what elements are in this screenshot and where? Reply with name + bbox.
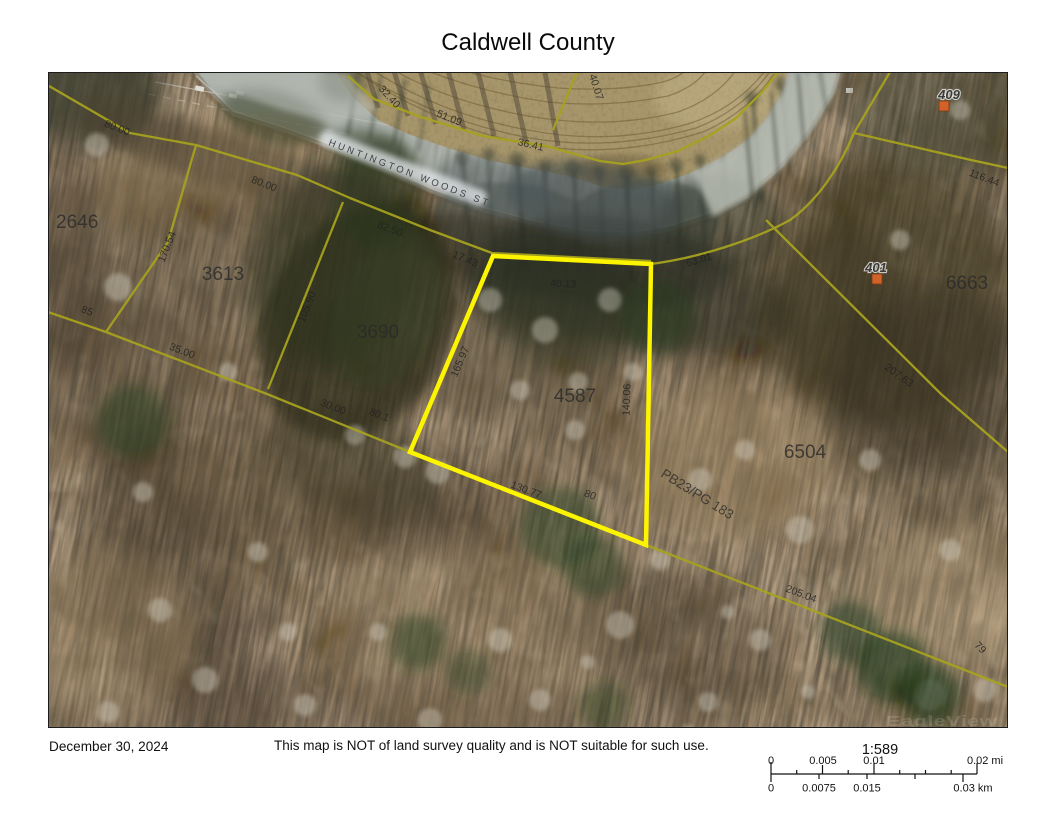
svg-text:2646: 2646 — [56, 212, 98, 233]
svg-text:6504: 6504 — [784, 442, 827, 463]
svg-text:140.06: 140.06 — [620, 383, 633, 416]
svg-text:0.03 km: 0.03 km — [953, 783, 992, 795]
svg-text:409: 409 — [937, 87, 960, 102]
svg-text:3690: 3690 — [357, 322, 399, 343]
svg-text:40.13: 40.13 — [550, 277, 577, 290]
svg-text:6663: 6663 — [946, 273, 988, 294]
svg-text:4587: 4587 — [554, 386, 596, 407]
svg-text:0: 0 — [768, 783, 774, 795]
svg-text:0.0075: 0.0075 — [802, 783, 836, 795]
svg-text:0.015: 0.015 — [853, 783, 881, 795]
svg-text:0.02 mi: 0.02 mi — [967, 755, 1003, 767]
svg-text:401: 401 — [864, 260, 887, 275]
svg-text:3613: 3613 — [202, 264, 244, 285]
